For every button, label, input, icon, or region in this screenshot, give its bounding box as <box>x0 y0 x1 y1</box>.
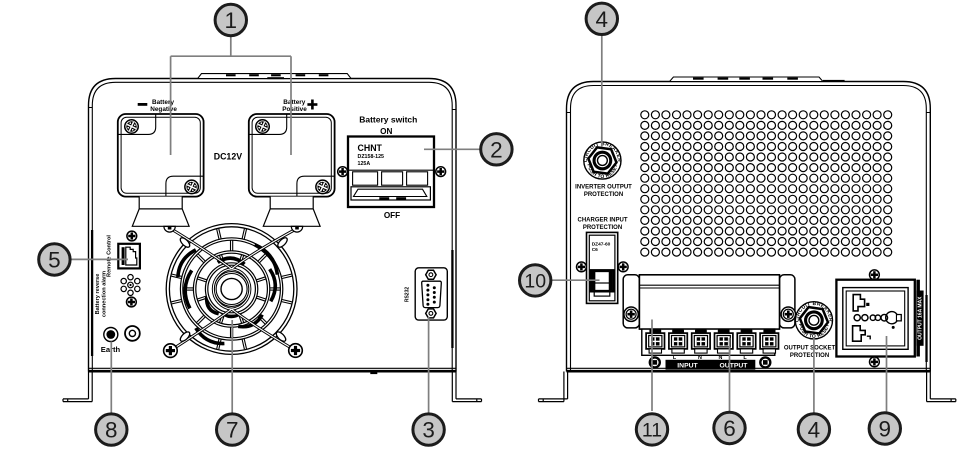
svg-text:DZ47-60: DZ47-60 <box>592 242 611 248</box>
svg-text:CHARGER INPUT: CHARGER INPUT <box>577 217 627 223</box>
svg-text:7: 7 <box>226 418 239 443</box>
svg-text:Positive: Positive <box>282 106 307 113</box>
svg-text:CHNT: CHNT <box>358 143 383 153</box>
svg-text:OUTPUT 16A MAX: OUTPUT 16A MAX <box>917 296 923 340</box>
svg-text:ON: ON <box>380 127 392 136</box>
svg-text:C6: C6 <box>592 247 598 253</box>
svg-text:Battery switch: Battery switch <box>359 115 417 125</box>
svg-text:INPUT: INPUT <box>677 362 698 369</box>
svg-text:Battery reverse: Battery reverse <box>95 274 101 315</box>
svg-text:6: 6 <box>723 416 736 441</box>
svg-text:PROTECTION: PROTECTION <box>584 192 623 198</box>
svg-text:PROTECTION: PROTECTION <box>583 225 622 231</box>
svg-text:5: 5 <box>48 247 61 272</box>
svg-text:OUTPUT: OUTPUT <box>720 362 749 369</box>
svg-text:3: 3 <box>422 418 435 443</box>
svg-text:2: 2 <box>490 137 503 162</box>
svg-text:125A: 125A <box>358 161 371 167</box>
svg-text:PROTECTION: PROTECTION <box>790 353 829 359</box>
svg-text:8: 8 <box>105 418 118 443</box>
svg-text:Remote Control: Remote Control <box>106 235 112 277</box>
svg-text:4: 4 <box>596 7 609 32</box>
svg-text:11: 11 <box>642 419 662 441</box>
svg-text:Negative: Negative <box>150 106 177 113</box>
svg-text:RS232: RS232 <box>404 287 410 303</box>
svg-text:OUTPUT SOCKET: OUTPUT SOCKET <box>784 345 836 351</box>
svg-text:connection alarm: connection alarm <box>102 271 108 317</box>
svg-text:9: 9 <box>879 416 892 441</box>
svg-text:DZ158-125: DZ158-125 <box>358 154 385 160</box>
svg-text:4: 4 <box>808 417 821 442</box>
svg-text:INVERTER OUTPUT: INVERTER OUTPUT <box>575 184 632 190</box>
svg-text:10: 10 <box>524 270 546 292</box>
svg-text:DC12V: DC12V <box>214 152 242 162</box>
svg-text:1: 1 <box>225 8 238 33</box>
svg-text:OFF: OFF <box>384 211 400 220</box>
